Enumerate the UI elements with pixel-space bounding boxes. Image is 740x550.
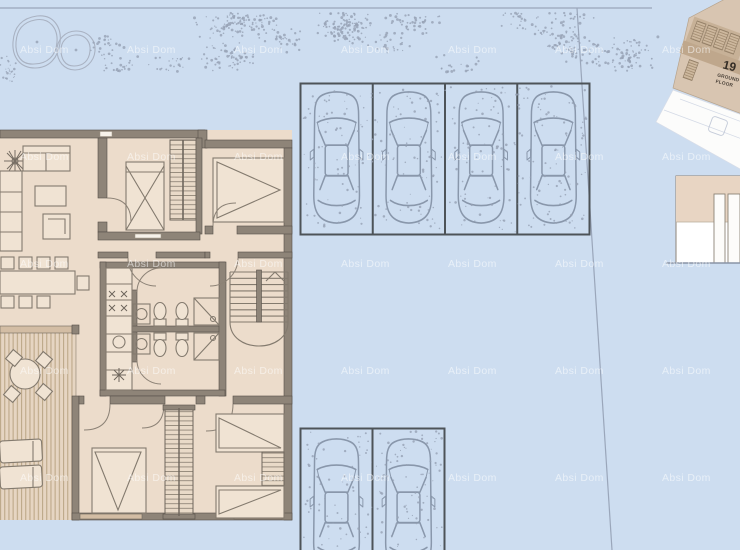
parked-car	[382, 439, 435, 550]
coffee-table	[35, 186, 66, 206]
parked-car	[527, 92, 580, 223]
inset-site-plan: 19 GROUND FLOOR	[656, 0, 740, 170]
parked-car	[383, 92, 436, 223]
hob-star-icon	[112, 368, 126, 382]
tree-1	[13, 16, 60, 68]
armchair	[43, 214, 70, 239]
bed-bottom-right-2	[216, 486, 284, 518]
kitchen-counter	[106, 268, 132, 390]
elevation-drawing	[666, 176, 740, 263]
parked-car	[310, 439, 363, 550]
bed-single	[126, 162, 164, 230]
closet-top	[170, 140, 196, 220]
parking-lot-bottom	[301, 429, 445, 550]
parking-lot-top	[301, 84, 590, 235]
shelf-bottom-right	[262, 452, 284, 486]
bed-bottom-left	[92, 448, 146, 513]
parked-car	[455, 92, 508, 223]
floor-plan	[0, 130, 292, 520]
parked-car	[310, 92, 363, 223]
closet-hall	[163, 405, 195, 519]
site-plan-canvas: 19 GROUND FLOOR Absi DomAbsi DomAbsi Dom…	[0, 0, 740, 550]
tree-2	[57, 31, 95, 70]
bed-double-top	[213, 158, 284, 222]
bed-bottom-right-1	[216, 414, 284, 452]
site-plan-graphic: 19 GROUND FLOOR	[0, 0, 740, 550]
